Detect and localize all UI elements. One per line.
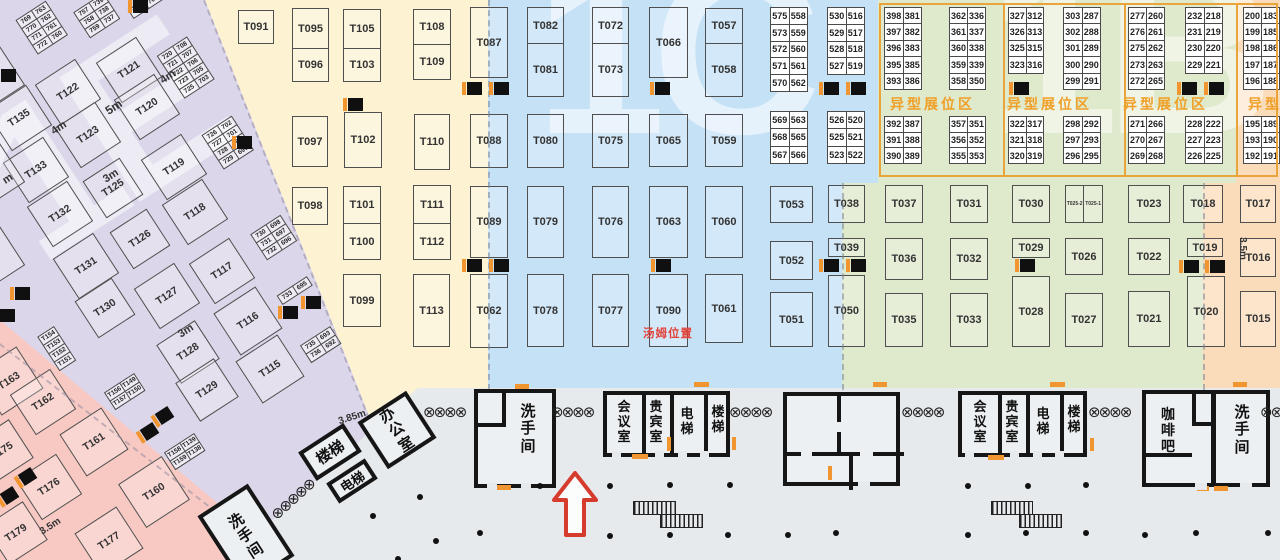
floor-dot: [370, 513, 376, 519]
floor-dot: [1142, 532, 1148, 538]
door-gap: [700, 451, 709, 458]
booth-t096: T096: [293, 49, 328, 81]
special-zone-label: 异型展位区: [890, 94, 975, 114]
floor-dot: [1025, 483, 1031, 489]
door-marker: [873, 382, 887, 387]
room-wall: [837, 432, 841, 454]
room-wall: [502, 393, 506, 427]
escalator-icon: [991, 501, 1033, 515]
booth-t028: T028: [1012, 276, 1050, 347]
pillar-marker: [133, 0, 148, 13]
room-label-楼梯: 楼梯: [1066, 405, 1082, 435]
pillar-marker: [467, 259, 482, 272]
room-label-咖啡吧: 咖啡吧: [1160, 406, 1176, 454]
booth-t059: T059: [705, 114, 743, 167]
room-wall: [873, 452, 904, 456]
booth-t058: T058: [706, 44, 742, 96]
booth-t078: T078: [527, 274, 564, 347]
pillar-marker: [237, 136, 252, 149]
booth-pair-t101: T101T100: [343, 186, 381, 260]
door-gap: [612, 451, 621, 458]
booth-t022: T022: [1128, 238, 1170, 275]
room-label-会议室: 会议室: [972, 400, 988, 445]
pillar-marker: [824, 82, 839, 95]
pillar-marker: [283, 306, 298, 319]
room-wall: [837, 396, 841, 422]
booth-t050: T050: [828, 275, 865, 347]
floor-dot: [965, 483, 971, 489]
room-block: [783, 392, 900, 486]
booth-t095: T095: [293, 9, 328, 49]
booth-number-strip: 757739758738759737: [74, 0, 121, 38]
booth-number-block: 575558573559572560571561570562: [770, 8, 808, 92]
escalator-icon: [660, 514, 703, 528]
floor-dot: [667, 482, 673, 488]
door-gap: [1240, 483, 1252, 490]
booth-t077: T077: [592, 274, 629, 347]
booth-t110: T110: [414, 114, 450, 170]
door-gap: [1055, 451, 1064, 458]
booth-number-strip: T156T149T157T150: [104, 374, 145, 410]
number-row: 525521: [827, 128, 865, 146]
room-wall: [1060, 395, 1064, 453]
booth-t031: T031: [950, 185, 988, 223]
door-marker: [988, 455, 1004, 460]
door-gap: [858, 481, 870, 488]
booth-number-strip: T154T153T152T151: [38, 327, 77, 371]
number-row: 569563: [770, 111, 808, 129]
zone-boundary-dashed: [842, 183, 844, 390]
room-wall: [642, 395, 646, 453]
booth-t057: T057: [706, 9, 742, 44]
booth-pair-t072: T072T073: [592, 7, 629, 97]
booth-t025-2: T025-2: [1066, 186, 1084, 222]
room-label: 洗手间: [225, 510, 267, 560]
booth-t113: T113: [413, 274, 450, 347]
floor-dot: [1083, 530, 1089, 536]
special-zone-divider: [1124, 3, 1126, 177]
pillar-marker: [824, 259, 839, 272]
booth-t103: T103: [344, 49, 380, 81]
floor-dot: [785, 532, 791, 538]
booth-t060: T060: [705, 186, 743, 258]
floor-dot: [1265, 530, 1271, 536]
booth-t017: T017: [1240, 185, 1276, 223]
pillar-marker: [0, 309, 15, 322]
booth-t082: T082: [528, 8, 563, 44]
number-row: 573559: [770, 24, 808, 42]
booth-t065: T065: [649, 114, 688, 167]
floor-dot: [607, 533, 613, 539]
number-row: 572560: [770, 41, 808, 59]
booth-t126: T126: [110, 209, 171, 270]
escalator-icon: [1019, 514, 1062, 528]
dimension-label: 3.5m: [1237, 237, 1248, 260]
pillar-marker: [1209, 82, 1224, 95]
corridor-chain: ⊗⊗⊗⊗: [551, 403, 593, 421]
room-label-贵宾室: 贵宾室: [1004, 400, 1020, 445]
booth-t032: T032: [950, 238, 988, 280]
booth-pair-t082: T082T081: [527, 7, 564, 97]
floor-dot: [1023, 530, 1029, 536]
floor-dot: [607, 483, 613, 489]
number-row: 567566: [770, 146, 808, 164]
number-row: 523522: [827, 146, 865, 164]
door-marker: [1090, 438, 1094, 451]
booth-t029: T029: [1012, 238, 1050, 258]
floor-dot: [833, 530, 839, 536]
room-label-会议室: 会议室: [616, 400, 632, 445]
booth-pair-t111: T111T112: [413, 185, 451, 260]
door-marker: [1214, 486, 1228, 491]
booth-pair-t095: T095T096: [292, 8, 329, 82]
booth-t033: T033: [950, 293, 988, 347]
booth-t066: T066: [649, 7, 688, 78]
pillar-marker: [306, 296, 321, 309]
booth-t080: T080: [527, 114, 564, 168]
floor-dot: [433, 538, 439, 544]
booth-pair-t025: T025-2T025-1: [1065, 185, 1103, 223]
booth-pair-t057: T057T058: [705, 8, 743, 97]
booth-t101: T101: [344, 187, 380, 224]
pillar-marker: [1020, 259, 1035, 272]
booth-t023: T023: [1128, 185, 1170, 223]
room-wall: [1026, 395, 1030, 453]
floor-dot: [395, 556, 401, 560]
pillar-marker: [1184, 260, 1199, 273]
door-gap: [1195, 483, 1207, 490]
booth-t020: T020: [1187, 276, 1225, 347]
booth-t076: T076: [592, 186, 629, 258]
door-marker: [632, 454, 648, 459]
booth-t108: T108: [414, 10, 450, 45]
booth-number-strip: 769763770762771761772760: [16, 1, 68, 54]
floor-dot: [417, 494, 423, 500]
number-row: 527519: [827, 57, 865, 75]
booth-t111: T111: [414, 186, 450, 224]
booth-t019: T019: [1187, 238, 1223, 257]
room-label-电梯: 电梯: [679, 407, 695, 437]
door-gap: [521, 483, 531, 490]
door-gap: [1033, 451, 1042, 458]
floorplan-canvas: 1E 1C 1B 7697637707627717617727607577397…: [0, 0, 1280, 560]
booth-t038: T038: [828, 185, 865, 223]
pillar-marker: [467, 82, 482, 95]
door-marker: [1233, 382, 1247, 387]
booth-t073: T073: [593, 44, 628, 96]
zone-boundary-dashed: [1203, 183, 1205, 390]
special-zone-label: 异型展位区: [1248, 94, 1280, 114]
door-gap: [678, 451, 687, 458]
pillar-marker: [851, 259, 866, 272]
room-wall: [849, 456, 853, 490]
booth-t037: T037: [885, 185, 923, 223]
pillar-marker: [15, 287, 30, 300]
booth-t061: T061: [705, 274, 743, 343]
booth-t027: T027: [1065, 293, 1103, 347]
number-row: 568565: [770, 128, 808, 146]
booth-t036: T036: [885, 238, 923, 280]
booth-number-block: 530516529517528518527519: [827, 8, 865, 75]
special-zone-label: 异型展位区: [1123, 94, 1208, 114]
door-marker: [515, 384, 529, 389]
special-zone-label: 异型展位区: [1007, 94, 1092, 114]
booth-number-block: 526520525521523522: [827, 112, 865, 164]
booth-t035: T035: [885, 293, 923, 347]
room-label-贵宾室: 贵宾室: [648, 400, 664, 445]
number-row: 528518: [827, 41, 865, 59]
room-wall: [704, 395, 708, 453]
room-label: 楼梯: [312, 435, 349, 469]
door-gap: [655, 451, 664, 458]
booth-t072: T072: [593, 8, 628, 44]
floor-dot: [965, 532, 971, 538]
pillar-marker: [494, 259, 509, 272]
pillar-marker: [656, 259, 671, 272]
floor-dot: [1193, 530, 1199, 536]
number-row: 575558: [770, 7, 808, 25]
booth-t026: T026: [1065, 238, 1103, 275]
pillar-marker: [155, 406, 175, 425]
door-marker: [828, 466, 832, 480]
room-label-洗手间: 洗手间: [520, 403, 536, 455]
floor-dot: [725, 532, 731, 538]
booth-t099: T099: [343, 274, 381, 327]
number-row: 529517: [827, 24, 865, 42]
corridor-chain: ⊗⊗: [1260, 403, 1280, 421]
booth-pair-t105: T105T103: [343, 9, 381, 82]
room-wall: [787, 452, 801, 456]
floor-dot: [537, 483, 543, 489]
number-row: 526520: [827, 111, 865, 129]
entrance-arrow-icon: [551, 470, 599, 543]
booth-t053: T053: [770, 186, 813, 223]
special-zone-divider: [1003, 3, 1005, 177]
room-label-电梯: 电梯: [1035, 407, 1051, 437]
booth-t015: T015: [1240, 291, 1276, 347]
booth-unlabeled: [0, 225, 25, 291]
room-wall: [478, 423, 502, 427]
booth-t052: T052: [770, 241, 813, 280]
corridor-chain: ⊗⊗⊗⊗⊗: [267, 475, 318, 524]
booth-t127: T127: [134, 263, 200, 329]
room-label-洗手间: 洗手间: [1234, 404, 1250, 456]
booth-t102: T102: [344, 112, 382, 168]
door-gap: [965, 451, 974, 458]
door-gap: [487, 483, 497, 490]
room-block: 会议室贵宾室电梯楼梯: [958, 391, 1087, 457]
booth-t075: T075: [592, 114, 629, 168]
room-wall: [998, 395, 1002, 453]
booth-t051: T051: [770, 292, 813, 347]
room-label-楼梯: 楼梯: [710, 405, 726, 435]
booth-t079: T079: [527, 186, 564, 258]
booth-t100: T100: [344, 224, 380, 259]
booth-t021: T021: [1128, 291, 1170, 347]
escalator-icon: [633, 501, 676, 515]
floor-dot: [1083, 482, 1089, 488]
booth-t063: T063: [649, 186, 688, 258]
tom-location-label: 汤姆位置: [643, 325, 693, 341]
door-marker: [694, 382, 709, 387]
number-row: 530516: [827, 7, 865, 25]
booth-t105: T105: [344, 10, 380, 49]
map-generated-content: 7697637707627717617727607577397587387597…: [0, 0, 1280, 560]
booth-t177: T177: [74, 506, 143, 560]
booth-number-strip: T158T139T159T138: [164, 434, 205, 470]
door-marker: [1050, 382, 1065, 387]
pillar-marker: [1210, 260, 1225, 273]
booth-t109: T109: [414, 45, 450, 79]
booth-t097: T097: [292, 116, 328, 167]
number-row: 571561: [770, 57, 808, 75]
pillar-marker: [1, 69, 16, 82]
booth-t039: T039: [828, 238, 865, 257]
room-block: 咖啡吧: [1142, 390, 1215, 487]
door-marker: [732, 437, 736, 450]
pillar-marker: [655, 82, 670, 95]
room-block: 洗手间: [474, 389, 556, 488]
booth-t081: T081: [528, 44, 563, 96]
door-marker: [497, 485, 511, 490]
floor-dot: [667, 532, 673, 538]
corridor-chain: ⊗⊗⊗⊗: [729, 403, 771, 421]
booth-t025-1: T025-1: [1084, 186, 1102, 222]
booth-t098: T098: [292, 187, 328, 225]
pillar-marker: [494, 82, 509, 95]
door-gap: [1010, 451, 1019, 458]
number-row: 570562: [770, 74, 808, 92]
booth-number-block: 569563568565567566: [770, 112, 808, 164]
pillar-marker: [0, 486, 19, 505]
room-wall: [1192, 394, 1196, 425]
booth-pair-t108: T108T109: [413, 9, 451, 80]
pillar-marker: [851, 82, 866, 95]
special-zone-divider: [1236, 3, 1238, 177]
corridor-chain: ⊗⊗⊗⊗: [423, 403, 465, 421]
zone-boundary-dashed: [488, 0, 490, 390]
booth-number-strip: 720708721707722706723705725703: [157, 37, 214, 99]
booth-t112: T112: [414, 224, 450, 259]
corridor-chain: ⊗⊗⊗⊗: [901, 403, 943, 421]
corridor-chain: ⊗⊗⊗⊗: [1088, 403, 1130, 421]
door-marker: [667, 437, 671, 451]
floor-dot: [727, 482, 733, 488]
booth-t091: T091: [238, 10, 274, 44]
booth-t030: T030: [1012, 185, 1050, 223]
room-label: 办公室: [376, 404, 418, 456]
room-label: 电梯: [336, 466, 368, 496]
pillar-marker: [348, 98, 363, 111]
floor-dot: [477, 530, 483, 536]
